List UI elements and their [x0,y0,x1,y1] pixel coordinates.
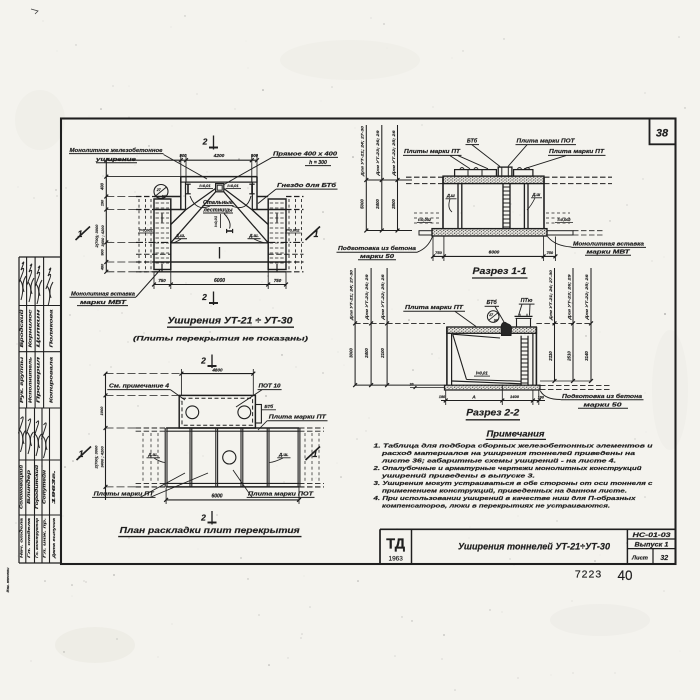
svg-text:20: 20 [409,383,414,387]
svg-text:Лист: Лист [631,556,648,562]
svg-text:7223: 7223 [575,569,602,581]
svg-text:Для УТ-22; 25; 28: Для УТ-22; 25; 28 [584,273,589,321]
svg-text:400: 400 [100,182,105,191]
svg-text:Плита марки ПТ: Плита марки ПТ [549,149,605,155]
svg-text:компенсаторов, люки в перек: компенсаторов, люки в перекрытиях не уст… [382,504,611,510]
svg-text:38: 38 [656,128,669,140]
svg-text:листе 36; габаритные схемы: листе 36; габаритные схемы уширений - на… [380,458,616,465]
svg-text:i=0,01: i=0,01 [199,183,211,188]
svg-text:2100: 2100 [380,348,385,359]
svg-text:Плита марки ПОТ: Плита марки ПОТ [517,139,576,145]
svg-text:1963г.: 1963г. [51,470,56,504]
svg-text:Монолитная вставка: Монолитная вставка [71,291,135,297]
svg-text:Сопутейн: Сопутейн [42,469,47,504]
svg-text:БТб: БТб [467,138,478,145]
svg-text:900: 900 [180,153,188,158]
svg-text:ПОТ 10: ПОТ 10 [259,384,281,390]
svg-text:i=0,002: i=0,002 [418,217,432,222]
svg-text:900: 900 [101,248,105,255]
svg-text:h = 300: h = 300 [309,160,327,166]
svg-text:НС-01-03: НС-01-03 [633,532,672,539]
svg-text:6000: 6000 [489,249,500,255]
svg-text:4800: 4800 [211,367,223,372]
svg-text:Д.ш: Д.ш [446,193,455,198]
svg-text:i=0,01: i=0,01 [213,215,218,227]
svg-text:(Плиты перекрытия не показа: (Плиты перекрытия не показаны) [133,336,309,343]
svg-text:190: 190 [439,395,446,399]
svg-text:Монолитная вставка: Монолитная вставка [573,241,644,247]
svg-text:2: 2 [202,137,208,147]
svg-text:2(700); 3000: 2(700); 3000 [93,445,98,470]
svg-text:Стальные: Стальные [203,200,233,206]
svg-text:3. Уширения могут устраивать: 3. Уширения могут устраиваться в обе сто… [374,480,654,487]
svg-text:Полякова: Полякова [49,309,54,348]
svg-text:Д.ш.: Д.ш. [278,452,289,457]
svg-text:40: 40 [617,568,632,583]
svg-text:Копировала: Копировала [49,356,54,403]
svg-text:Рук. группы: Рук. группы [19,356,24,403]
svg-text:Блиндер: Блиндер [26,469,31,504]
svg-text:Гл. инж. пр.: Гл. инж. пр. [42,518,47,558]
svg-text:Уширения тоннелей УТ-21÷УТ-3: Уширения тоннелей УТ-21÷УТ-30 [458,542,610,552]
svg-text:Разрез 2-2: Разрез 2-2 [466,407,520,418]
svg-text:ТД: ТД [386,537,405,553]
svg-text:Для УТ-23; 26; 29: Для УТ-23; 26; 29 [566,273,571,321]
svg-text:1400: 1400 [510,394,520,399]
svg-text:2: 2 [200,513,206,523]
svg-text:Для УТ-23; 26; 29: Для УТ-23; 26; 29 [375,129,380,177]
svg-text:Д.ш.: Д.ш. [175,233,186,238]
svg-text:Солоновицкий: Солоновицкий [18,464,23,509]
svg-text:марки 50: марки 50 [584,402,622,408]
svg-text:4200: 4200 [213,153,225,159]
svg-text:Выпуск 1: Выпуск 1 [635,542,670,548]
svg-text:1963: 1963 [388,556,403,563]
svg-text:Плиты марки ПТ: Плиты марки ПТ [404,149,461,155]
svg-text:Плита марки ПТ: Плита марки ПТ [269,415,327,421]
svg-text:Прямое 400 х 400: Прямое 400 х 400 [273,152,337,158]
svg-text:Для УТ-21; 24; 27-30: Для УТ-21; 24; 27-30 [348,269,353,321]
svg-text:2400: 2400 [364,348,369,359]
svg-text:Для УТ-22; 25; 28: Для УТ-22; 25; 28 [380,273,385,321]
svg-text:Гл. конструктор: Гл. конструктор [34,517,39,558]
svg-text:БТб: БТб [486,299,497,306]
svg-text:4. При использовании уширени: 4. При использовании уширений в качестве… [372,495,637,502]
svg-text:План раскладки плит перекры: План раскладки плит перекрытия [120,525,300,535]
svg-text:марки МВТ: марки МВТ [587,249,631,255]
svg-text:Дата выпуска: Дата выпуска [51,517,56,559]
svg-text:6000: 6000 [211,494,222,500]
svg-text:Плита марки ПОТ: Плита марки ПОТ [248,491,314,497]
svg-text:2(700); 3000: 2(700); 3000 [94,224,99,249]
svg-text:Гл. отдела: Гл. отдела [26,517,31,558]
svg-text:Корнилос: Корнилос [27,309,32,348]
svg-text:лестницы: лестницы [202,207,233,213]
svg-text:32: 32 [660,555,668,562]
svg-text:i=0,002: i=0,002 [286,228,300,233]
svg-text:Примечания: Примечания [487,430,545,439]
svg-text:ПТю: ПТю [521,298,533,304]
svg-text:6000: 6000 [214,278,225,284]
svg-text:3000: 3000 [348,348,353,358]
svg-text:Для УТ-21; 24; 27-30: Для УТ-21; 24; 27-30 [548,269,553,321]
svg-text:5000: 5000 [360,199,365,209]
svg-text:2800: 2800 [391,199,396,210]
svg-text:2: 2 [200,356,206,366]
svg-text:БТб: БТб [264,403,273,409]
svg-text:Проверил: Проверил [36,356,41,403]
svg-text:190: 190 [101,199,105,206]
svg-text:i=0,01: i=0,01 [227,183,239,188]
svg-text:750: 750 [435,250,442,255]
svg-text:750: 750 [546,250,553,255]
svg-text:применением конструкций, при: применением конструкций, приведенных на … [382,488,628,495]
svg-text:Исполнитель: Исполнитель [27,356,32,403]
svg-text:900: 900 [251,153,259,158]
svg-text:2510: 2510 [566,351,571,362]
svg-text:1000: 1000 [99,406,104,416]
svg-text:Уширения УТ-21 ÷ УТ-30: Уширения УТ-21 ÷ УТ-30 [168,316,294,326]
svg-text:Д.ш.: Д.ш. [248,233,259,238]
svg-text:А: А [471,394,476,400]
svg-text:480: 480 [101,263,105,271]
svg-text:34: 34 [494,319,498,323]
svg-text:Городинский: Городинский [34,464,39,509]
svg-text:Подготовка из бетона: Подготовка из бетона [338,245,416,252]
svg-text:марки МВТ: марки МВТ [80,300,127,306]
svg-text:2110: 2110 [548,351,553,362]
svg-text:Монолитное железобетонное: Монолитное железобетонное [70,147,163,154]
svg-text:750: 750 [274,278,282,283]
svg-text:Д.ш.: Д.ш. [147,452,158,457]
svg-text:3400 ; 4200: 3400 ; 4200 [100,225,105,247]
svg-text:Для УТ-21; 24; 27-30: Для УТ-21; 24; 27-30 [360,125,365,177]
svg-text:3140: 3140 [584,351,589,361]
svg-text:3400 ; 4200: 3400 ; 4200 [99,446,104,468]
svg-text:i=0,01: i=0,01 [476,370,488,375]
svg-text:уширений приведены в выпуск: уширений приведены в выпуске 3. [380,473,535,480]
svg-text:Для УТ-23; 26; 29: Для УТ-23; 26; 29 [364,273,369,321]
svg-text:расход материалов на уширен: расход материалов на уширения тоннелей п… [380,450,635,457]
svg-text:Д.ш: Д.ш [531,192,540,197]
svg-text:2: 2 [201,292,207,302]
svg-text:Изм. внесены: Изм. внесены [6,568,10,593]
svg-text:Бродский: Бродский [18,309,24,347]
svg-text:Плита марки ПТ: Плита марки ПТ [405,305,464,311]
svg-text:2. Опалубочные и арматурные: 2. Опалубочные и арматурные чертежи моно… [372,465,642,472]
svg-text:1. Таблица для подбора сбор: 1. Таблица для подбора сборных железобет… [374,443,654,450]
svg-text:Подготовка из бетона: Подготовка из бетона [562,393,642,400]
svg-text:См. примечание 4: См. примечание 4 [109,384,169,390]
svg-text:i=0,002: i=0,002 [139,228,153,233]
svg-text:190: 190 [538,396,545,400]
svg-text:Разрез 1-1: Разрез 1-1 [473,265,527,276]
svg-text:Гнездо для БТб: Гнездо для БТб [277,182,337,189]
svg-text:2400: 2400 [375,199,380,210]
svg-text:i=0,002: i=0,002 [557,217,571,222]
svg-text:Нач. отдела: Нач. отдела [18,517,23,558]
svg-text:750: 750 [158,278,166,283]
svg-text:Для УТ-22; 25; 28: Для УТ-22; 25; 28 [391,129,396,177]
svg-text:марки 50: марки 50 [360,254,394,260]
svg-text:Ципкин: Ципкин [36,309,41,347]
